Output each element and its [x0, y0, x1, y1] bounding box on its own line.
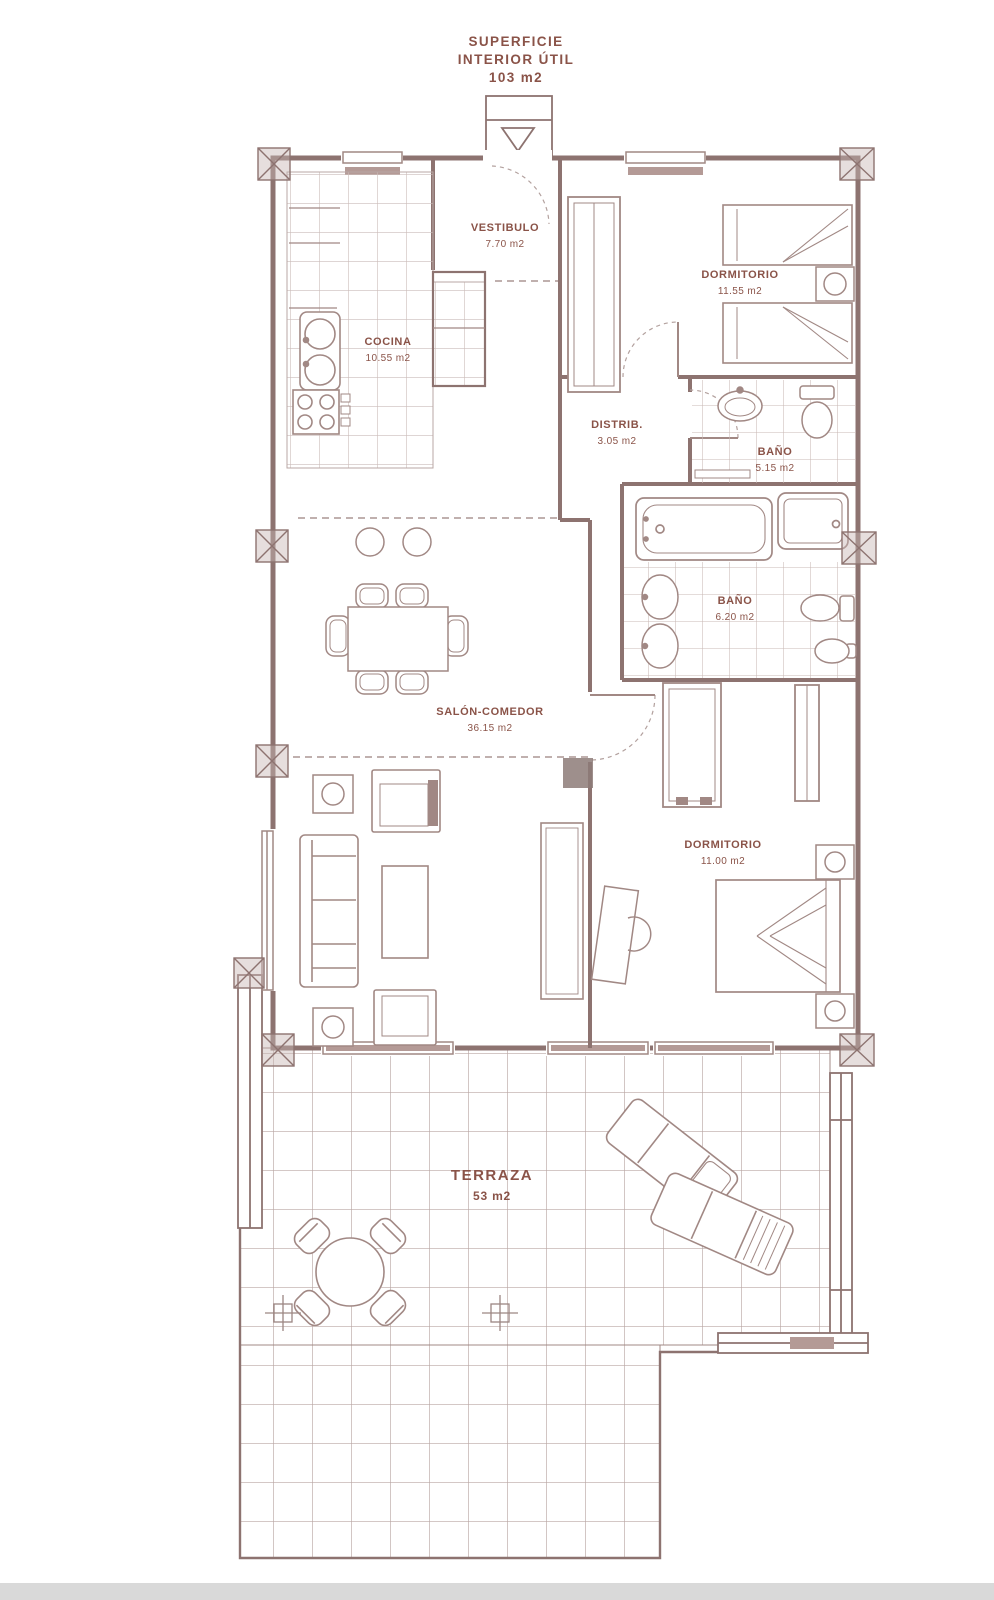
- wardrobe: [568, 197, 620, 392]
- bathtub: [636, 498, 772, 560]
- bath1-shelf: [695, 470, 750, 478]
- room-area-dormitorio-1: 11.55 m2: [718, 286, 762, 297]
- single-bed: [723, 205, 852, 265]
- room-label-bano-1: BAÑO: [758, 445, 793, 458]
- room-terraza: TERRAZA 53 m2: [238, 975, 868, 1558]
- terrace-tiles-lower: [240, 1345, 660, 1558]
- column-marker: [256, 745, 288, 777]
- title-total-area: 103 m2: [489, 70, 543, 85]
- title-line-1: SUPERFICIE: [468, 34, 563, 49]
- coffee-table: [382, 866, 428, 958]
- dining-chair: [356, 670, 388, 694]
- armchair: [374, 990, 436, 1045]
- room-label-salon: SALÓN-COMEDOR: [436, 705, 543, 718]
- floor-plan-drawing: SUPERFICIE INTERIOR ÚTIL 103 m2: [0, 0, 994, 1600]
- double-bed: [716, 880, 840, 992]
- dining-chair: [326, 616, 350, 656]
- room-area-dormitorio-2: 11.00 m2: [701, 856, 745, 867]
- room-label-distribuidor: DISTRIB.: [591, 419, 643, 431]
- footer-bar: [0, 1583, 994, 1600]
- floor-plan-page: SUPERFICIE INTERIOR ÚTIL 103 m2: [0, 0, 994, 1600]
- room-label-dormitorio-2: DORMITORIO: [684, 839, 761, 851]
- column-marker: [842, 532, 876, 564]
- speaker: [313, 1008, 353, 1046]
- room-bano-1: BAÑO 5.15 m2: [692, 380, 856, 483]
- room-label-cocina: COCINA: [365, 336, 412, 348]
- terrace-railing-right: [830, 1073, 852, 1335]
- toilet: [800, 386, 834, 438]
- armchair: [372, 770, 440, 832]
- nightstand: [816, 845, 854, 879]
- toilet: [801, 595, 854, 621]
- terrace-railing-left: [238, 975, 262, 1228]
- dining-chair: [396, 584, 428, 608]
- tv-cabinet: [541, 823, 583, 999]
- room-area-cocina: 10.55 m2: [366, 353, 411, 364]
- room-area-terraza: 53 m2: [473, 1189, 511, 1203]
- room-label-vestibulo: VESTIBULO: [471, 222, 539, 234]
- room-label-terraza: TERRAZA: [451, 1167, 533, 1184]
- entrance-opening: [483, 150, 552, 166]
- column-marker: [262, 1034, 294, 1066]
- entrance-arrow-icon: [502, 128, 534, 151]
- room-area-salon: 36.15 m2: [468, 723, 513, 734]
- column-marker: [258, 148, 290, 180]
- title-line-2: INTERIOR ÚTIL: [458, 52, 574, 67]
- room-area-bano-1: 5.15 m2: [756, 463, 795, 474]
- entrance: [486, 96, 552, 158]
- terrace-railing-bottom: [718, 1333, 868, 1353]
- dining-chair: [356, 584, 388, 608]
- kitchen-sink: [300, 312, 340, 390]
- speaker: [313, 775, 353, 813]
- column-marker: [840, 1034, 874, 1066]
- column-marker: [234, 958, 264, 988]
- nightstand: [816, 267, 854, 301]
- single-bed: [723, 303, 852, 363]
- washbasin: [642, 575, 678, 619]
- room-bano-2: BAÑO 6.20 m2: [624, 493, 856, 678]
- room-label-bano-2: BAÑO: [718, 594, 753, 607]
- sofa: [300, 835, 358, 987]
- terrace-round-table: [316, 1238, 384, 1306]
- structural-column: [563, 758, 593, 788]
- terrace-tiles-upper: [240, 1048, 830, 1345]
- column-marker: [256, 530, 288, 562]
- room-label-dormitorio-1: DORMITORIO: [701, 269, 778, 281]
- wardrobe: [663, 683, 721, 807]
- room-area-bano-2: 6.20 m2: [716, 612, 755, 623]
- dining-chair: [396, 670, 428, 694]
- shower-tray: [778, 493, 848, 549]
- washbasin: [642, 624, 678, 668]
- dining-table: [348, 607, 448, 671]
- room-area-vestibulo: 7.70 m2: [486, 239, 525, 250]
- wardrobe: [795, 685, 819, 801]
- column-marker: [840, 148, 874, 180]
- plan-title: SUPERFICIE INTERIOR ÚTIL 103 m2: [458, 34, 574, 85]
- nightstand: [816, 994, 854, 1028]
- room-area-distribuidor: 3.05 m2: [598, 436, 637, 447]
